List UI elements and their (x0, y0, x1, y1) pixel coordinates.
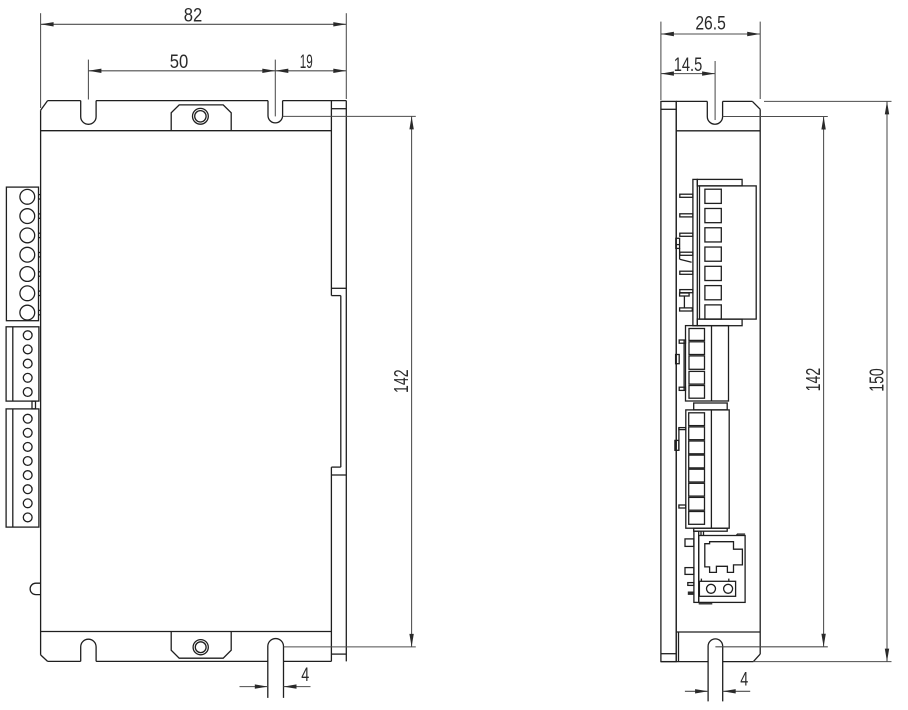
svg-text:4: 4 (740, 670, 748, 691)
svg-text:26.5: 26.5 (695, 13, 726, 34)
svg-text:142: 142 (391, 369, 413, 393)
svg-text:142: 142 (803, 368, 825, 392)
svg-text:14.5: 14.5 (674, 55, 703, 76)
svg-text:19: 19 (300, 52, 313, 73)
svg-text:4: 4 (301, 665, 309, 686)
svg-text:150: 150 (866, 368, 888, 392)
svg-text:82: 82 (184, 6, 203, 27)
svg-text:50: 50 (170, 52, 189, 73)
